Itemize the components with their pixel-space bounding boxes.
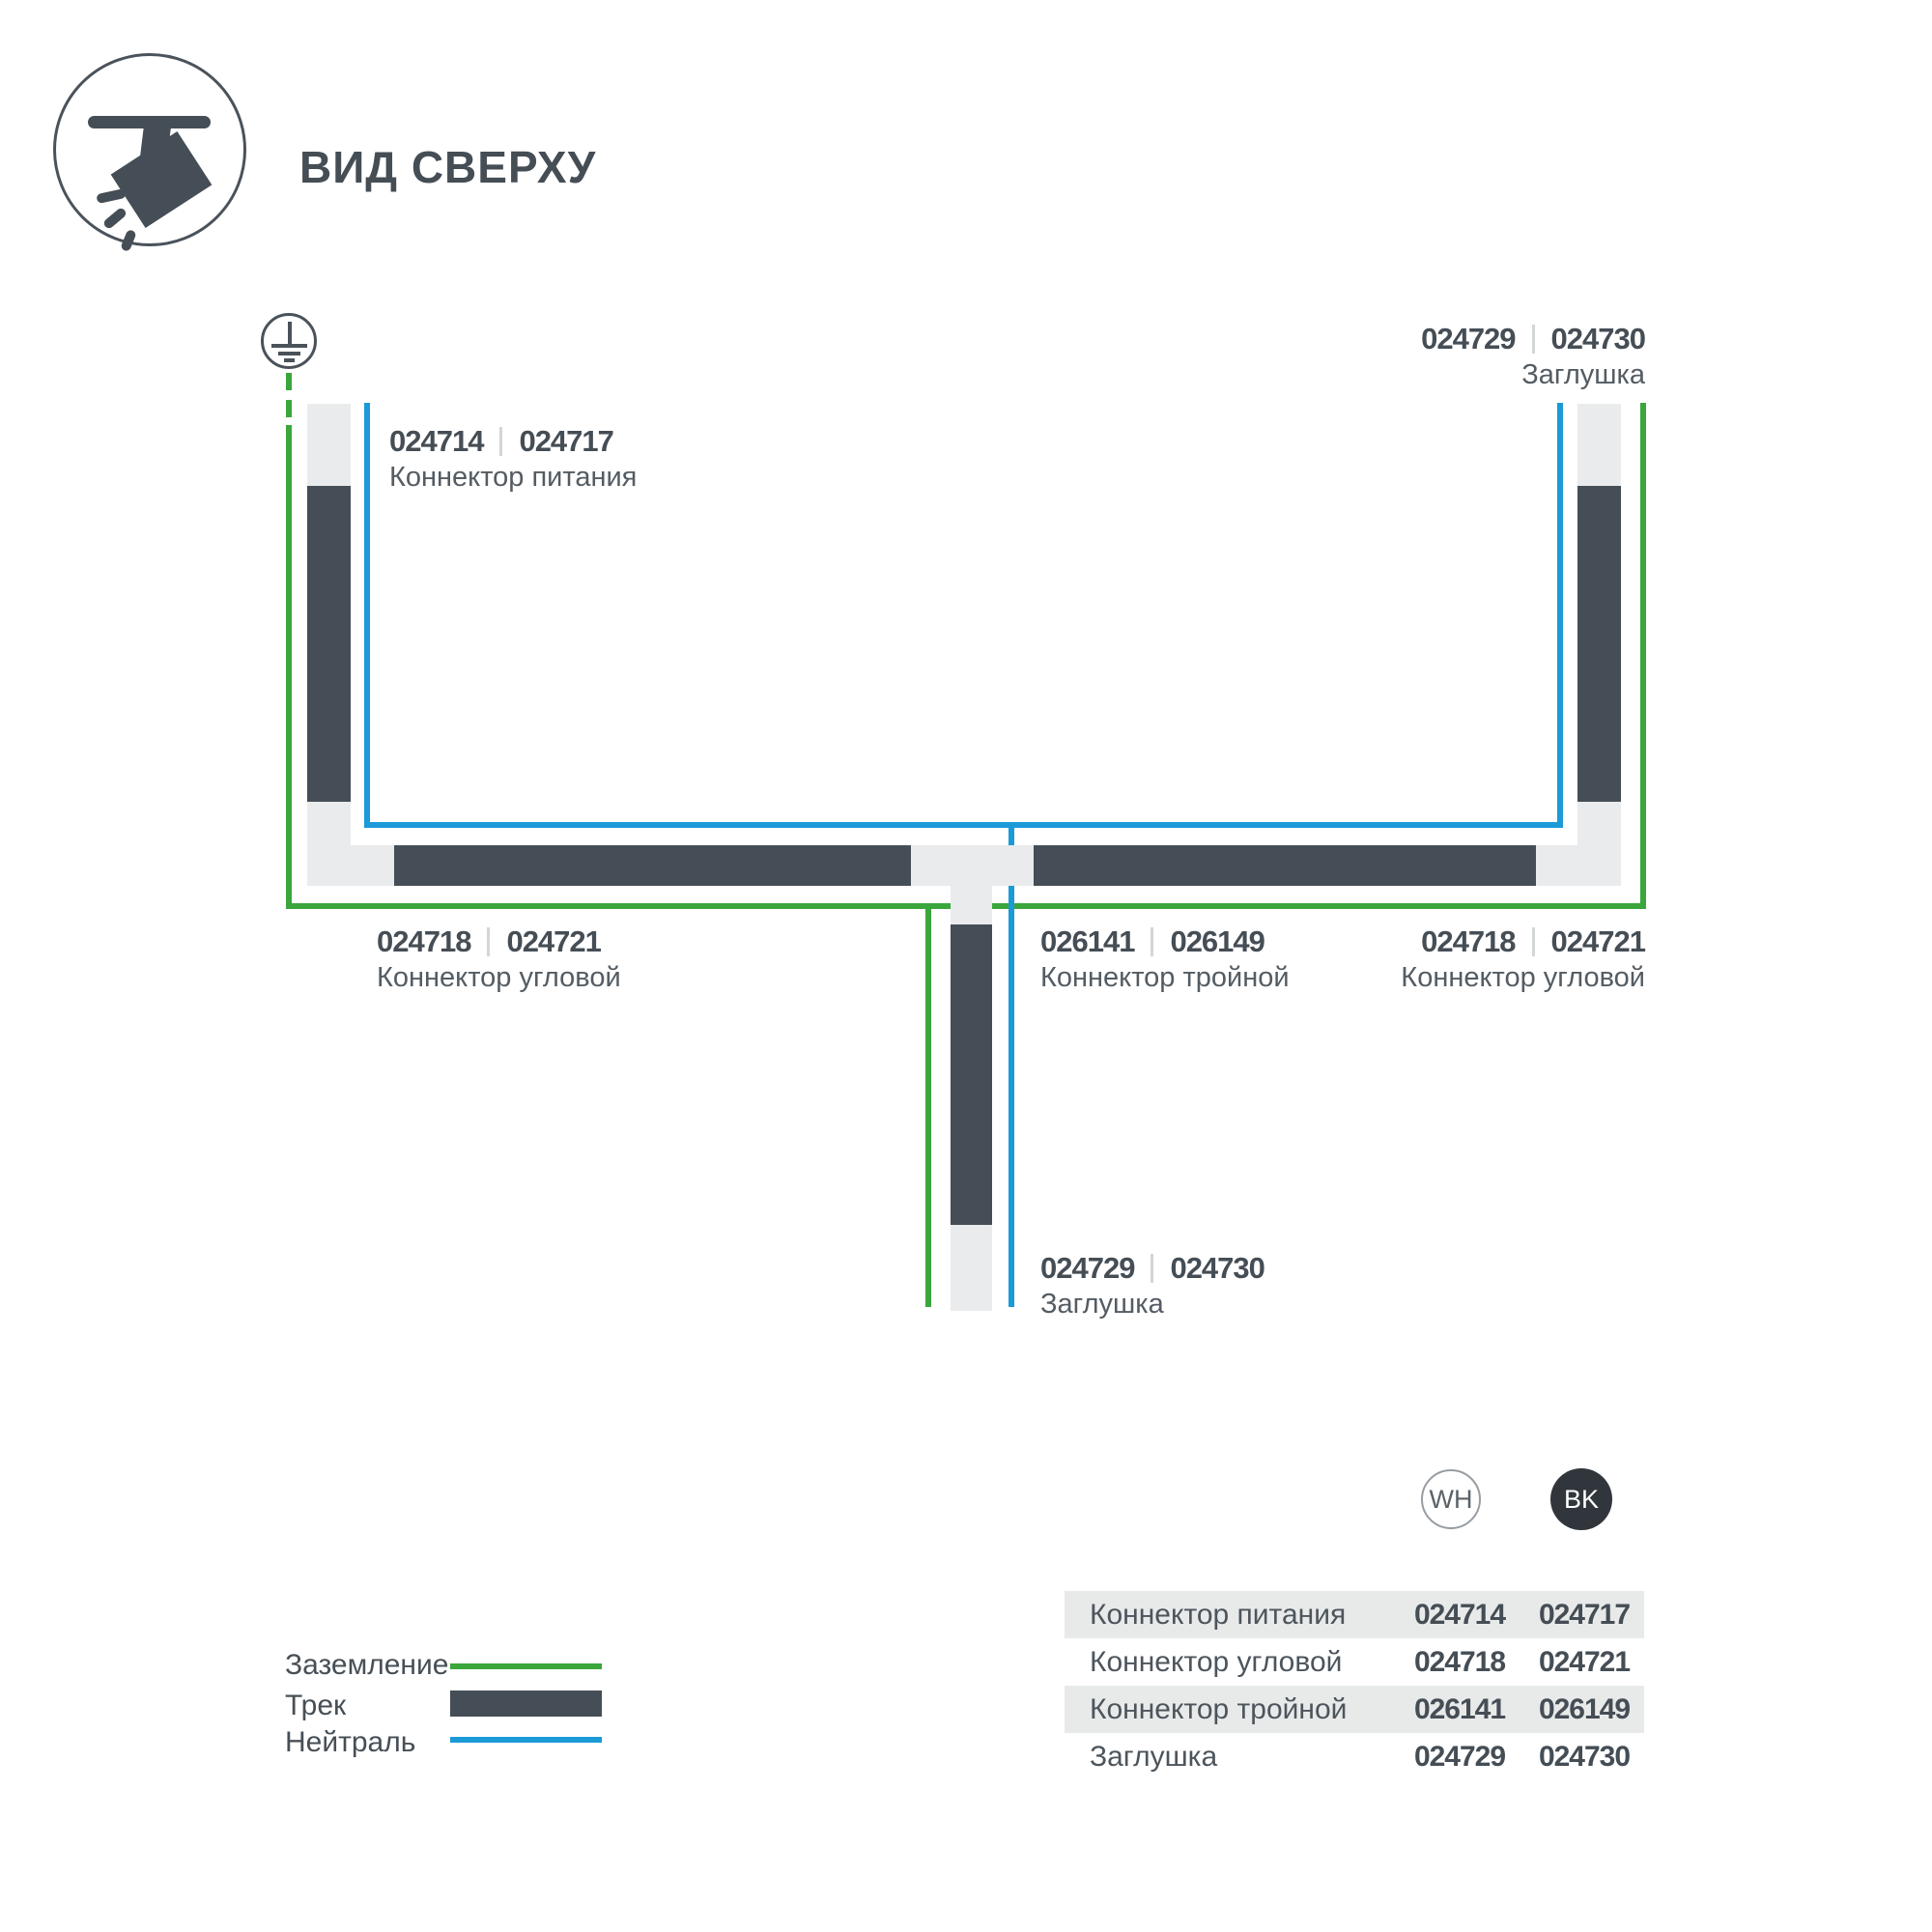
ground-stem: [288, 322, 292, 346]
legend-swatch-track-bar: [450, 1690, 602, 1717]
table-row: Коннектор угловой 024718 024721: [1065, 1638, 1644, 1686]
track-spotlight-icon: [53, 53, 246, 246]
legend-label-neutral: Нейтраль: [285, 1726, 415, 1759]
light-ray-shape: [102, 207, 128, 230]
badge-label: WH: [1430, 1485, 1473, 1515]
legend-label-track: Трек: [285, 1690, 346, 1722]
row-name: Коннектор питания: [1065, 1599, 1411, 1632]
neutral-wire-top: [364, 822, 1563, 828]
code-wh: 024718: [1421, 925, 1515, 958]
neutral-wire-leg: [1009, 828, 1014, 1307]
page-title: ВИД СВЕРХУ: [299, 141, 596, 193]
code-separator: [487, 927, 490, 956]
color-badge-black: BK: [1550, 1468, 1612, 1530]
part-codes: 026141 026149: [1040, 925, 1290, 958]
row-code-wh: 024714: [1411, 1599, 1508, 1632]
tee-connector-leg: [951, 884, 992, 924]
label-corner-left: 024718 024721 Коннектор угловой: [377, 925, 621, 994]
code-bk: 026149: [1170, 925, 1264, 958]
legend-label-ground: Заземление: [285, 1649, 448, 1682]
ground-bar-large: [271, 344, 307, 348]
table-row: Заглушка 024729 024730: [1065, 1733, 1644, 1780]
ground-bar-small: [284, 358, 295, 362]
legend-swatch-ground-line: [450, 1663, 602, 1669]
earth-ground-icon: [261, 313, 317, 369]
track-segment-left: [307, 486, 351, 802]
label-tee-connector: 026141 026149 Коннектор тройной: [1040, 925, 1290, 994]
code-bk: 024730: [1551, 323, 1645, 355]
part-codes: 024729 024730: [1421, 323, 1645, 355]
ground-wire-leg: [925, 909, 931, 1307]
row-code-bk: 024730: [1536, 1741, 1633, 1774]
light-ray-shape: [120, 229, 137, 252]
row-code-wh: 024718: [1411, 1646, 1508, 1679]
corner-connector-left: [307, 802, 351, 886]
ground-wire-right: [1640, 403, 1646, 909]
endcap-piece-top-right: [1577, 404, 1621, 486]
ground-bar-medium: [278, 352, 300, 355]
code-bk: 024730: [1170, 1252, 1264, 1285]
part-name: Заглушка: [1421, 358, 1645, 391]
code-wh: 024718: [377, 925, 470, 958]
part-codes: 024714 024717: [389, 425, 637, 458]
part-name: Коннектор угловой: [377, 961, 621, 994]
code-separator: [1532, 927, 1535, 956]
legend-swatch-neutral-line: [450, 1737, 602, 1743]
row-code-bk: 024721: [1536, 1646, 1633, 1679]
row-name: Заглушка: [1065, 1741, 1411, 1774]
part-name: Коннектор питания: [389, 461, 637, 494]
light-ray-shape: [96, 188, 126, 204]
row-code-wh: 024729: [1411, 1741, 1508, 1774]
track-segment-bottom-right: [1034, 845, 1536, 886]
code-bk: 024721: [506, 925, 600, 958]
code-wh: 024714: [389, 425, 483, 458]
part-name: Коннектор угловой: [1401, 961, 1645, 994]
code-separator: [499, 427, 502, 456]
code-separator: [1532, 325, 1535, 354]
endcap-piece-bottom: [951, 1225, 992, 1311]
row-code-bk: 026149: [1536, 1693, 1633, 1726]
label-corner-right: 024718 024721 Коннектор угловой: [1401, 925, 1645, 994]
corner-connector-left: [351, 845, 394, 886]
table-row: Коннектор питания 024714 024717: [1065, 1591, 1644, 1638]
page: ВИД СВЕРХУ 024714 024717 Коннектор питан…: [0, 0, 1932, 1932]
ground-wire-left: [286, 425, 292, 909]
track-segment-leg: [951, 924, 992, 1225]
corner-connector-right: [1577, 802, 1621, 886]
neutral-wire-right: [1557, 403, 1563, 828]
part-name: Заглушка: [1040, 1288, 1264, 1321]
color-badge-white: WH: [1421, 1469, 1481, 1529]
table-row: Коннектор тройной 026141 026149: [1065, 1686, 1644, 1733]
ground-wire-dash: [286, 400, 292, 417]
neutral-wire-left: [364, 403, 370, 828]
ground-wire-dash: [286, 373, 292, 390]
code-wh: 024729: [1421, 323, 1515, 355]
corner-connector-right: [1536, 845, 1577, 886]
part-codes: 024729 024730: [1040, 1252, 1264, 1285]
part-name: Коннектор тройной: [1040, 961, 1290, 994]
code-bk: 024721: [1551, 925, 1645, 958]
code-wh: 024729: [1040, 1252, 1134, 1285]
part-codes: 024718 024721: [1401, 925, 1645, 958]
code-wh: 026141: [1040, 925, 1134, 958]
code-separator: [1151, 927, 1153, 956]
track-segment-right: [1577, 486, 1621, 802]
label-endcap-top-right: 024729 024730 Заглушка: [1421, 323, 1645, 391]
label-endcap-bottom: 024729 024730 Заглушка: [1040, 1252, 1264, 1321]
row-code-bk: 024717: [1536, 1599, 1633, 1632]
track-segment-bottom-left: [394, 845, 911, 886]
part-codes: 024718 024721: [377, 925, 621, 958]
row-name: Коннектор тройной: [1065, 1693, 1411, 1726]
power-connector-piece: [307, 404, 351, 486]
tee-connector-piece: [911, 845, 1034, 886]
row-code-wh: 026141: [1411, 1693, 1508, 1726]
code-separator: [1151, 1254, 1153, 1283]
code-bk: 024717: [519, 425, 612, 458]
row-name: Коннектор угловой: [1065, 1646, 1411, 1679]
label-power-connector: 024714 024717 Коннектор питания: [389, 425, 637, 494]
badge-label: BK: [1564, 1485, 1599, 1515]
parts-table: Коннектор питания 024714 024717 Коннекто…: [1065, 1591, 1644, 1780]
